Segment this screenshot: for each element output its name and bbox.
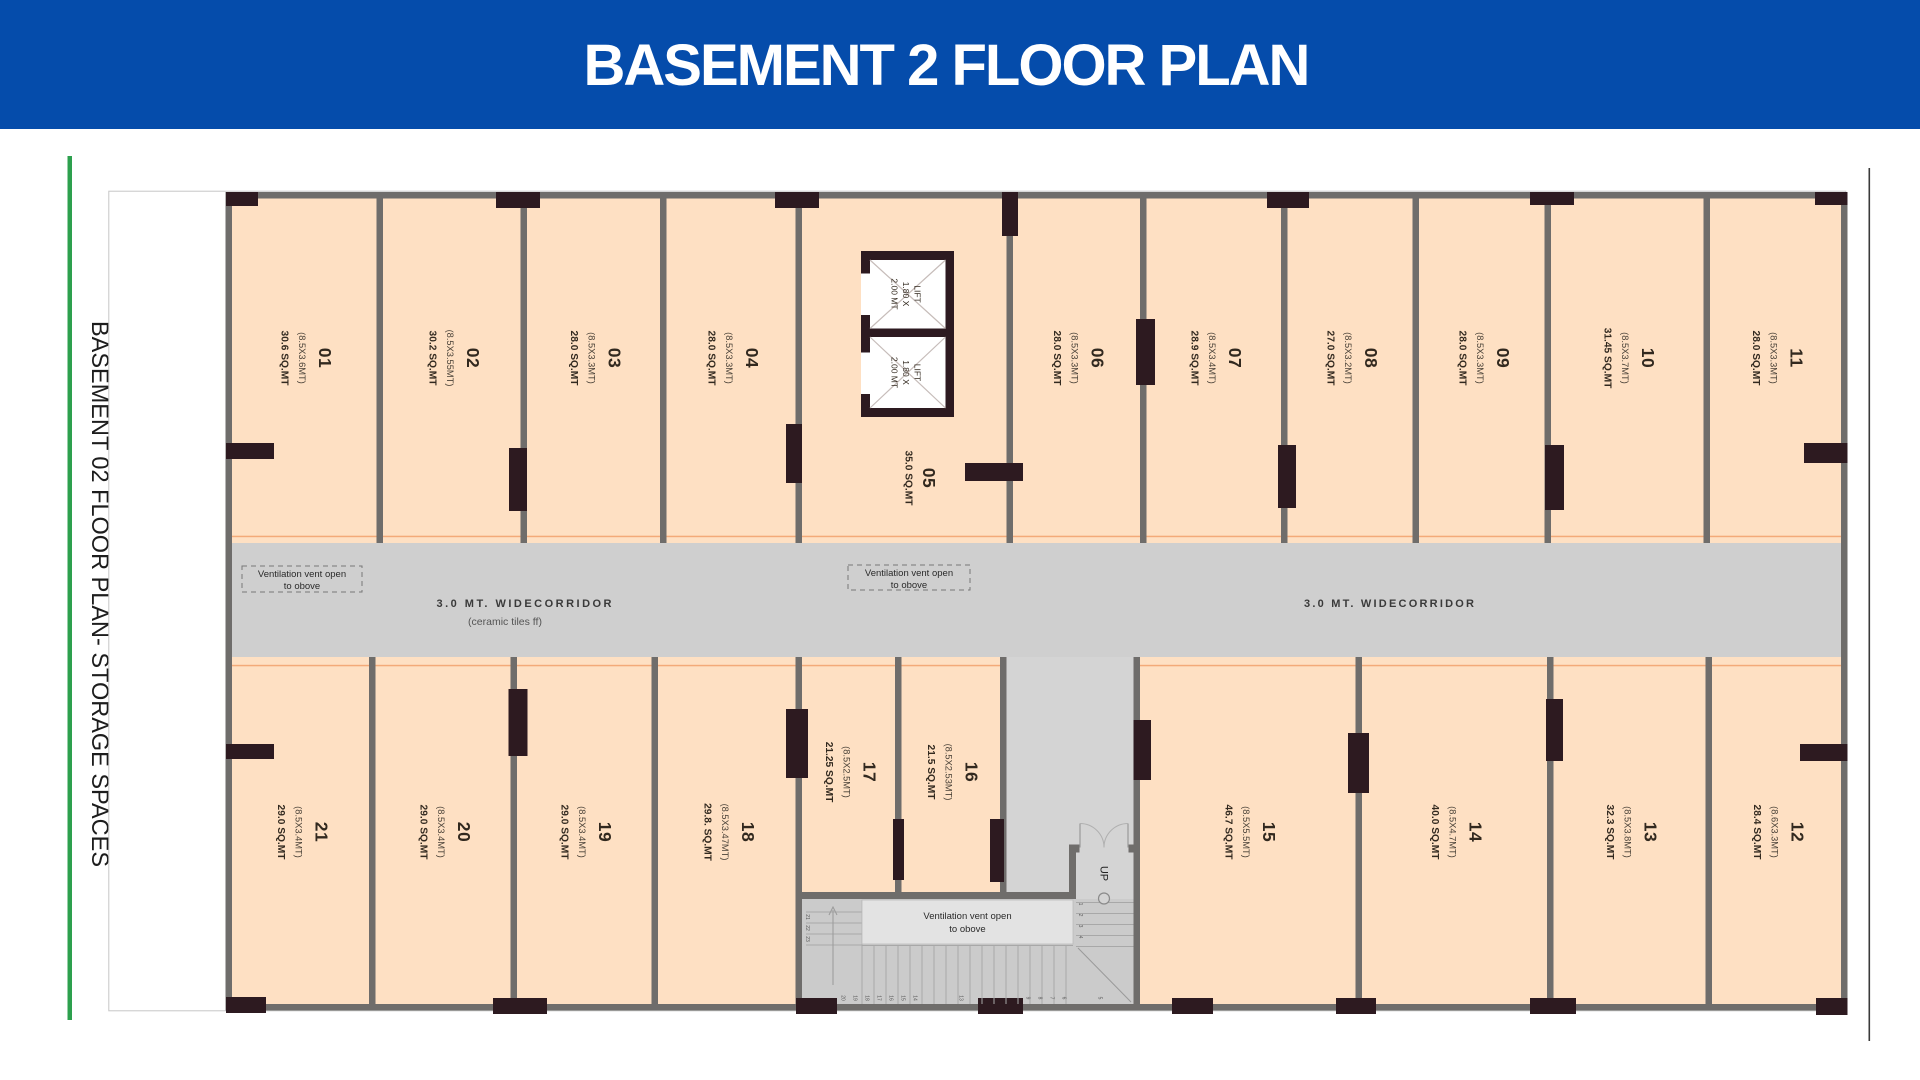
svg-text:(8.5X4.7MT): (8.5X4.7MT) [1447, 806, 1457, 858]
svg-text:(8.5X3.55MT): (8.5X3.55MT) [445, 330, 455, 387]
svg-text:12: 12 [1787, 822, 1807, 842]
svg-text:LIFT: LIFT [913, 285, 923, 302]
svg-text:18: 18 [863, 995, 869, 1001]
svg-text:17: 17 [875, 995, 881, 1001]
svg-text:(8.5X3.3MT): (8.5X3.3MT) [1069, 332, 1079, 384]
svg-text:19: 19 [595, 822, 615, 842]
svg-text:04: 04 [742, 348, 762, 368]
svg-text:40.0 SQ.MT: 40.0 SQ.MT [1429, 805, 1440, 861]
svg-text:28.0 SQ.MT: 28.0 SQ.MT [1051, 331, 1062, 387]
svg-text:11: 11 [1786, 348, 1806, 368]
svg-text:20: 20 [839, 995, 845, 1001]
svg-text:28.9 SQ.MT: 28.9 SQ.MT [1188, 331, 1199, 387]
svg-text:28.0 SQ.MT: 28.0 SQ.MT [1750, 331, 1761, 387]
svg-text:7: 7 [1048, 997, 1054, 1000]
svg-text:29.8. SQ.MT: 29.8. SQ.MT [701, 803, 712, 862]
svg-text:8: 8 [1036, 997, 1042, 1000]
svg-text:1.80 X: 1.80 X [901, 360, 911, 385]
svg-text:1.80 X: 1.80 X [901, 282, 911, 307]
svg-text:13: 13 [957, 995, 963, 1001]
svg-text:22: 22 [804, 925, 810, 931]
svg-text:UP: UP [1098, 866, 1110, 881]
svg-text:(8.5X3.4MT): (8.5X3.4MT) [577, 806, 587, 858]
svg-text:9: 9 [1024, 997, 1030, 1000]
svg-text:(8.5X3.7MT): (8.5X3.7MT) [1620, 332, 1630, 384]
svg-text:29.0 SQ.MT: 29.0 SQ.MT [275, 805, 286, 861]
svg-text:14: 14 [911, 995, 917, 1001]
svg-text:Ventilation vent open: Ventilation vent open [923, 911, 1011, 922]
svg-text:1: 1 [1077, 903, 1083, 906]
svg-text:16: 16 [961, 762, 981, 782]
svg-text:46.7 SQ.MT: 46.7 SQ.MT [1222, 805, 1233, 861]
svg-text:17: 17 [859, 762, 879, 782]
svg-text:(8.5X3.3MT): (8.5X3.3MT) [1768, 332, 1778, 384]
svg-text:29.0 SQ.MT: 29.0 SQ.MT [417, 805, 428, 861]
svg-text:(8.6X3.3MT): (8.6X3.3MT) [1769, 806, 1779, 858]
svg-text:(8.5X3.4MT): (8.5X3.4MT) [436, 806, 446, 858]
svg-text:03: 03 [604, 348, 624, 368]
svg-text:(8.5X2.5MT): (8.5X2.5MT) [841, 746, 851, 798]
svg-text:(8.5X3.3MT): (8.5X3.3MT) [586, 332, 596, 384]
svg-text:(8.5X3.3MT): (8.5X3.3MT) [1475, 332, 1485, 384]
svg-text:18: 18 [738, 822, 758, 842]
svg-text:29.0 SQ.MT: 29.0 SQ.MT [558, 805, 569, 861]
svg-text:15: 15 [1259, 822, 1279, 842]
svg-text:23: 23 [804, 936, 810, 942]
svg-text:21.25 SQ.MT: 21.25 SQ.MT [823, 742, 834, 803]
svg-text:30.2 SQ.MT: 30.2 SQ.MT [426, 331, 437, 387]
svg-text:02: 02 [463, 348, 483, 368]
svg-text:(8.5X3.4MT): (8.5X3.4MT) [293, 806, 303, 858]
svg-text:to obove: to obove [284, 581, 320, 592]
svg-text:08: 08 [1361, 348, 1381, 368]
svg-text:28.4 SQ.MT: 28.4 SQ.MT [1751, 805, 1762, 861]
svg-text:01: 01 [315, 348, 335, 368]
svg-text:Ventilation vent open: Ventilation vent open [258, 569, 346, 580]
svg-text:(8.5X3.2MT): (8.5X3.2MT) [1343, 332, 1353, 384]
svg-text:(8.5X3.4MT): (8.5X3.4MT) [1207, 332, 1217, 384]
svg-text:Ventilation vent open: Ventilation vent open [865, 568, 953, 579]
svg-text:(8.5X3.3MT): (8.5X3.3MT) [724, 332, 734, 384]
svg-text:to obove: to obove [949, 924, 985, 935]
svg-text:30.6 SQ.MT: 30.6 SQ.MT [278, 331, 289, 387]
svg-text:28.0 SQ.MT: 28.0 SQ.MT [705, 331, 716, 387]
svg-text:10: 10 [1638, 348, 1658, 368]
svg-text:14: 14 [1465, 822, 1485, 842]
svg-text:to obove: to obove [891, 580, 927, 591]
svg-text:21: 21 [804, 914, 810, 920]
svg-text:(8.5X2.53MT): (8.5X2.53MT) [943, 744, 953, 801]
svg-text:6: 6 [1060, 997, 1066, 1000]
svg-text:35.0 SQ.MT: 35.0 SQ.MT [902, 451, 913, 507]
svg-text:09: 09 [1493, 348, 1513, 368]
svg-text:20: 20 [454, 822, 474, 842]
svg-text:16: 16 [887, 995, 893, 1001]
svg-text:(8.5X3.6MT): (8.5X3.6MT) [297, 332, 307, 384]
svg-text:15: 15 [899, 995, 905, 1001]
svg-text:31.45 SQ.MT: 31.45 SQ.MT [1601, 328, 1612, 389]
svg-text:2.00 MT: 2.00 MT [890, 357, 900, 388]
svg-text:06: 06 [1087, 348, 1107, 368]
svg-text:28.0 SQ.MT: 28.0 SQ.MT [568, 331, 579, 387]
svg-text:13: 13 [1640, 822, 1660, 842]
svg-text:2.00 MT: 2.00 MT [890, 278, 900, 309]
svg-text:(ceramic tiles ff): (ceramic tiles ff) [468, 616, 542, 628]
svg-text:19: 19 [851, 995, 857, 1001]
svg-text:05: 05 [919, 468, 939, 488]
svg-text:BASEMENT 2 FLOOR PLAN: BASEMENT 2 FLOOR PLAN [584, 33, 1309, 98]
svg-text:(8.5X3.47MT): (8.5X3.47MT) [720, 804, 730, 861]
svg-text:(8.5X5.5MT): (8.5X5.5MT) [1241, 806, 1251, 858]
svg-text:(8.5X3.8MT): (8.5X3.8MT) [1622, 806, 1632, 858]
svg-text:21: 21 [311, 822, 331, 842]
svg-text:27.0 SQ.MT: 27.0 SQ.MT [1324, 331, 1335, 387]
svg-text:2: 2 [1077, 914, 1083, 917]
svg-text:LIFT: LIFT [913, 364, 923, 381]
svg-text:21.5 SQ.MT: 21.5 SQ.MT [925, 745, 936, 801]
svg-text:32.3 SQ.MT: 32.3 SQ.MT [1604, 805, 1615, 861]
svg-text:3: 3 [1077, 925, 1083, 928]
svg-text:5: 5 [1096, 997, 1102, 1000]
svg-text:07: 07 [1225, 348, 1245, 368]
svg-text:28.0 SQ.MT: 28.0 SQ.MT [1456, 331, 1467, 387]
svg-text:4: 4 [1077, 936, 1083, 939]
